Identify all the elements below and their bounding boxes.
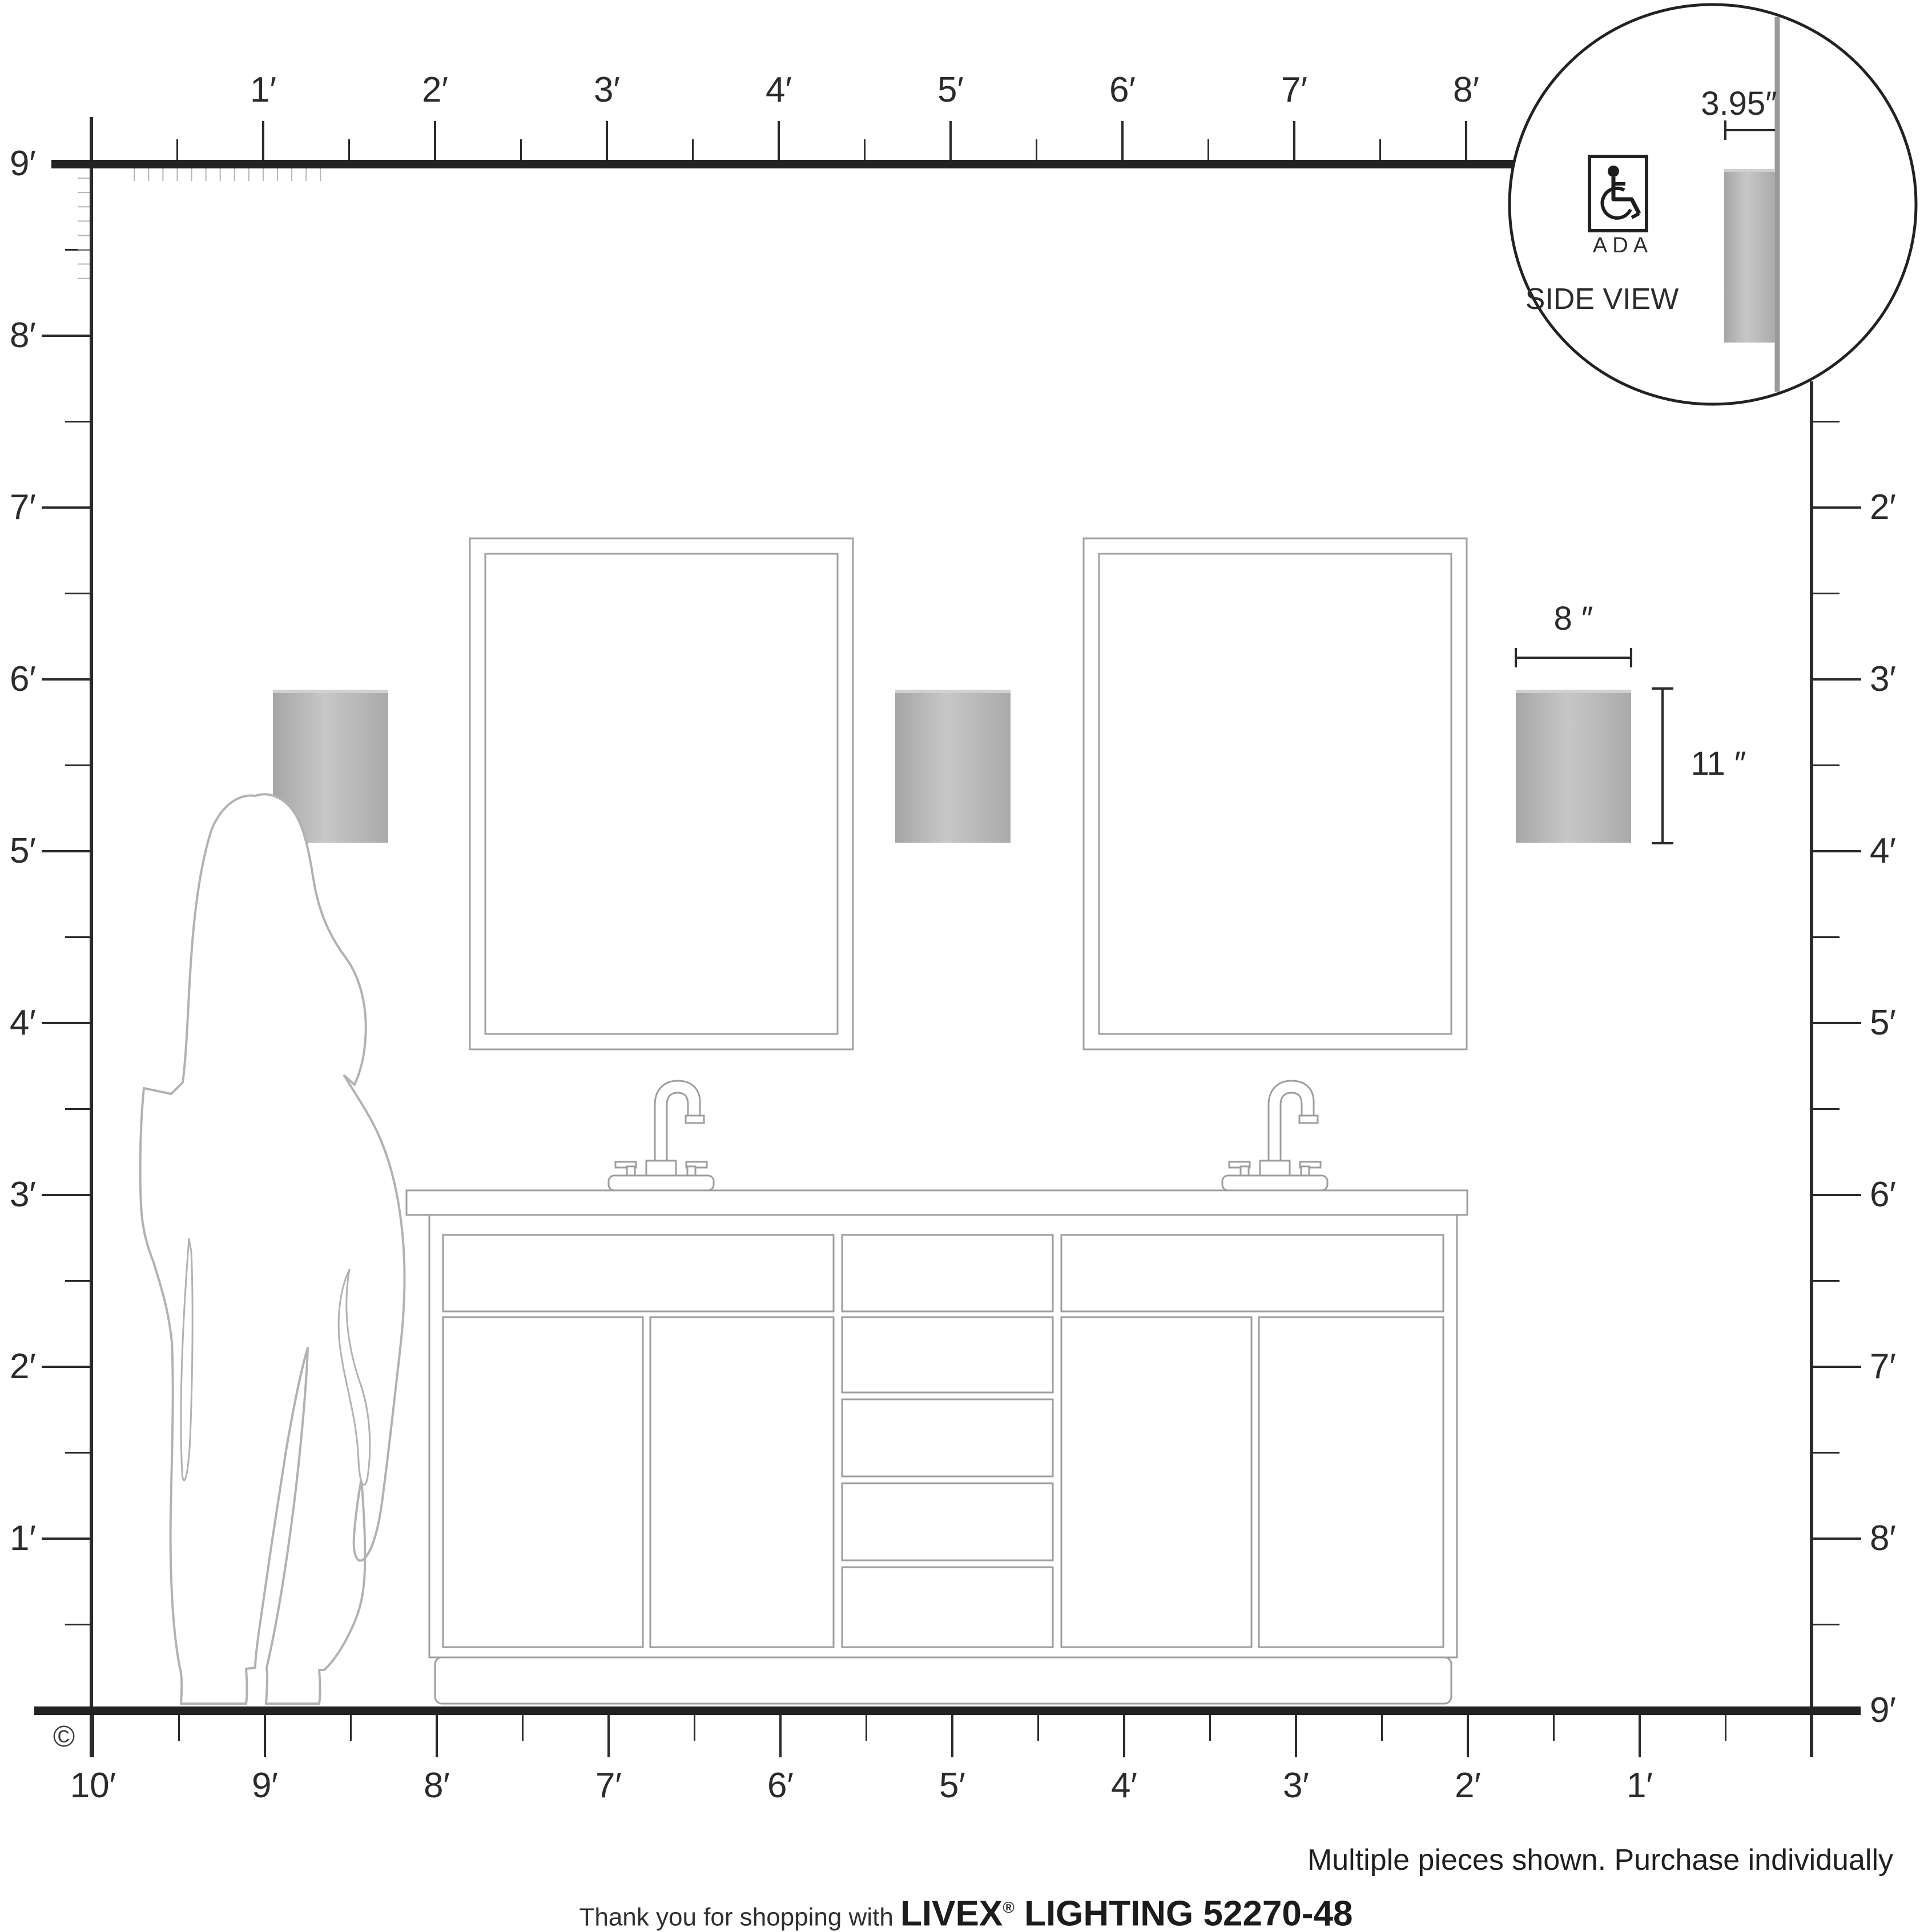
vanity-door [1259, 1317, 1443, 1647]
sconce-center [895, 690, 1011, 843]
ruler-label: 5′ [939, 1768, 965, 1804]
ruler-label: 3′ [1283, 1768, 1309, 1804]
copyright-symbol: © [53, 1722, 75, 1752]
faucet-right [1222, 1081, 1327, 1190]
side-view-title: SIDE VIEW [1526, 284, 1679, 314]
vanity-drawer [842, 1567, 1053, 1647]
ruler-label: 7′ [10, 490, 36, 525]
vanity-false-front [443, 1235, 834, 1311]
ruler-label: 8′ [1453, 73, 1479, 108]
person-silhouette [140, 794, 405, 1704]
vanity-drawer [842, 1399, 1053, 1476]
ruler-label: 6′ [767, 1768, 794, 1804]
ruler-label: 8′ [10, 318, 36, 353]
vanity-plinth [435, 1657, 1451, 1704]
ruler-label: 6′ [10, 662, 36, 697]
ruler-label: 1′ [1627, 1768, 1653, 1804]
ruler-label: 10′ [70, 1768, 116, 1804]
vanity-false-front [1061, 1235, 1443, 1311]
ruler-label: 8′ [424, 1768, 450, 1804]
ruler-label: 2′ [10, 1349, 36, 1384]
ruler-label: 5′ [937, 73, 964, 108]
ruler-label: 5′ [10, 834, 36, 869]
ruler-label: 6′ [1109, 73, 1136, 108]
ruler-label: 3′ [594, 73, 620, 108]
vanity-false-front [842, 1235, 1053, 1311]
product-dimension-diagram: 3.95″ ADA SIDE VIEW 8 ″ 11 ″ © Multiple … [0, 0, 1932, 1932]
product-number: LIGHTING 52270-48 [1015, 1894, 1353, 1932]
ruler-label: 4′ [766, 73, 792, 108]
ruler-label: 1′ [10, 1521, 36, 1556]
width-dimension-label: 8 ″ [1554, 602, 1593, 635]
brand-name: LIVEX [900, 1894, 1003, 1932]
ruler-label: 7′ [1870, 1349, 1896, 1384]
vanity-door [650, 1317, 834, 1647]
ruler-label: 4′ [1870, 834, 1896, 869]
ruler-label: 8′ [1870, 1521, 1896, 1556]
thanks-text: Thank you for shopping with [579, 1903, 900, 1931]
ruler-label: 7′ [1281, 73, 1307, 108]
ruler-label: 2′ [1870, 490, 1896, 525]
vanity-counter [406, 1190, 1467, 1215]
ruler-label: 4′ [1111, 1768, 1137, 1804]
mirror-right [1084, 538, 1467, 1049]
sconce-right [1516, 690, 1631, 843]
ruler-label: 9′ [10, 146, 36, 182]
ruler-label: 7′ [595, 1768, 622, 1804]
ruler-label: 9′ [252, 1768, 278, 1804]
sconce-side-view [1724, 169, 1775, 343]
mirror-left [470, 538, 853, 1049]
ruler-label: 9′ [1870, 1693, 1896, 1728]
purchase-note: Multiple pieces shown. Purchase individu… [1307, 1843, 1893, 1877]
height-dimension-line [1652, 689, 1673, 843]
faucet-left [609, 1081, 714, 1190]
ruler-label: 5′ [1870, 1005, 1896, 1041]
footer-brand-line: Thank you for shopping with LIVEX® LIGHT… [579, 1894, 1353, 1932]
vanity-door [443, 1317, 643, 1647]
ruler-label: 3′ [10, 1177, 36, 1213]
ruler-label: 4′ [10, 1005, 36, 1041]
ruler-label: 3′ [1870, 662, 1896, 697]
ceiling-line [51, 160, 1514, 168]
vanity [406, 1190, 1467, 1704]
detail-circle [1510, 5, 1916, 404]
vanity-door [1061, 1317, 1251, 1647]
width-dimension-line [1516, 648, 1631, 667]
ruler-label: 1′ [250, 73, 276, 108]
ruler-label: 2′ [1455, 1768, 1481, 1804]
ruler-label: 2′ [422, 73, 448, 108]
ada-label: ADA [1588, 235, 1653, 256]
floor-line [34, 1706, 1861, 1715]
vanity-drawer [842, 1483, 1053, 1560]
height-dimension-label: 11 ″ [1691, 747, 1746, 780]
registered-mark: ® [1003, 1899, 1015, 1917]
vanity-drawer [842, 1317, 1053, 1392]
ruler-label: 6′ [1870, 1177, 1896, 1213]
ada-icon [1589, 156, 1647, 231]
depth-dimension-label: 3.95″ [1701, 87, 1777, 120]
